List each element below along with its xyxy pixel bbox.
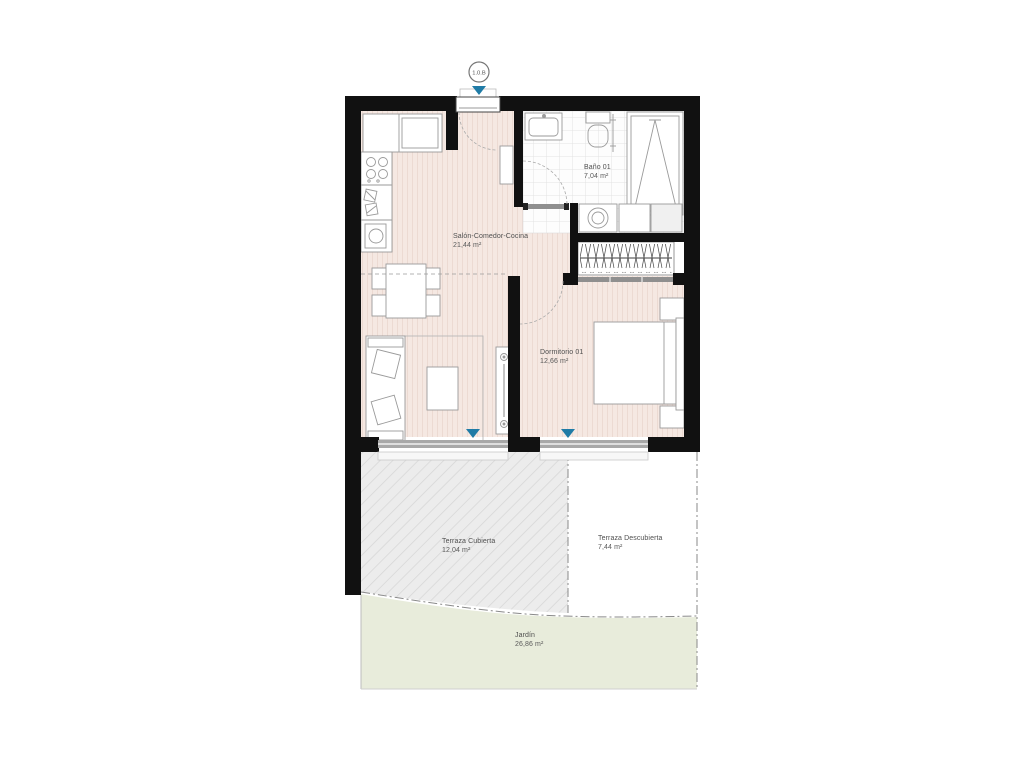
room-name: Terraza Cubierta xyxy=(442,538,495,547)
dining-chair xyxy=(425,268,440,289)
terrace-threshold xyxy=(378,452,508,460)
room-label-salon: Salón-Comedor-Cocina 21,44 m² xyxy=(453,233,528,250)
hall-cabinet xyxy=(500,146,513,184)
room-area: 21,44 m² xyxy=(453,242,528,251)
laundry-counter xyxy=(651,204,682,232)
sofa-armrest xyxy=(368,338,403,347)
bathroom-sliding-door xyxy=(523,204,569,209)
terrace-threshold xyxy=(540,452,648,460)
room-area: 7,04 m² xyxy=(584,173,611,182)
laundry-counter xyxy=(619,204,650,232)
dining-chair xyxy=(372,268,387,289)
room-area: 12,04 m² xyxy=(442,547,495,556)
outdoor-areas xyxy=(361,452,697,689)
floor-plan-canvas: 1.0.B Salón-Comedor-Cocina 21,44 m² Baño… xyxy=(0,0,1024,768)
nightstand xyxy=(660,298,684,320)
wardrobe-sliding-doors xyxy=(578,277,673,282)
room-name: Terraza Descubierta xyxy=(598,535,663,544)
coffee-table xyxy=(427,367,458,410)
room-name: Salón-Comedor-Cocina xyxy=(453,233,528,242)
room-area: 12,66 m² xyxy=(540,358,583,367)
dining-table xyxy=(386,264,426,318)
kitchen-counter xyxy=(361,152,392,252)
room-label-jardin: Jardín 26,86 m² xyxy=(515,632,543,649)
dining-chair xyxy=(372,295,387,316)
room-label-terraza-cubierta: Terraza Cubierta 12,04 m² xyxy=(442,538,495,555)
floor-plan-drawing: 1.0.B xyxy=(0,0,1024,768)
unit-badge-label: 1.0.B xyxy=(472,71,486,77)
room-label-dormitorio: Dormitorio 01 12,66 m² xyxy=(540,349,583,366)
washing-machine xyxy=(579,204,617,232)
dining-chair xyxy=(425,295,440,316)
entry-door xyxy=(456,97,500,112)
shower xyxy=(627,112,683,215)
room-name: Dormitorio 01 xyxy=(540,349,583,358)
room-area: 7,44 m² xyxy=(598,544,663,553)
room-name: Baño 01 xyxy=(584,164,611,173)
kitchen-cabinet xyxy=(402,118,438,148)
room-area: 26,86 m² xyxy=(515,641,543,650)
room-label-bano: Baño 01 7,04 m² xyxy=(584,164,611,181)
bathroom-sink xyxy=(525,113,562,140)
wardrobe xyxy=(578,242,674,275)
room-name: Jardín xyxy=(515,632,543,641)
covered-terrace-area xyxy=(361,452,568,613)
room-label-terraza-descubierta: Terraza Descubierta 7,44 m² xyxy=(598,535,663,552)
headboard xyxy=(676,318,684,410)
